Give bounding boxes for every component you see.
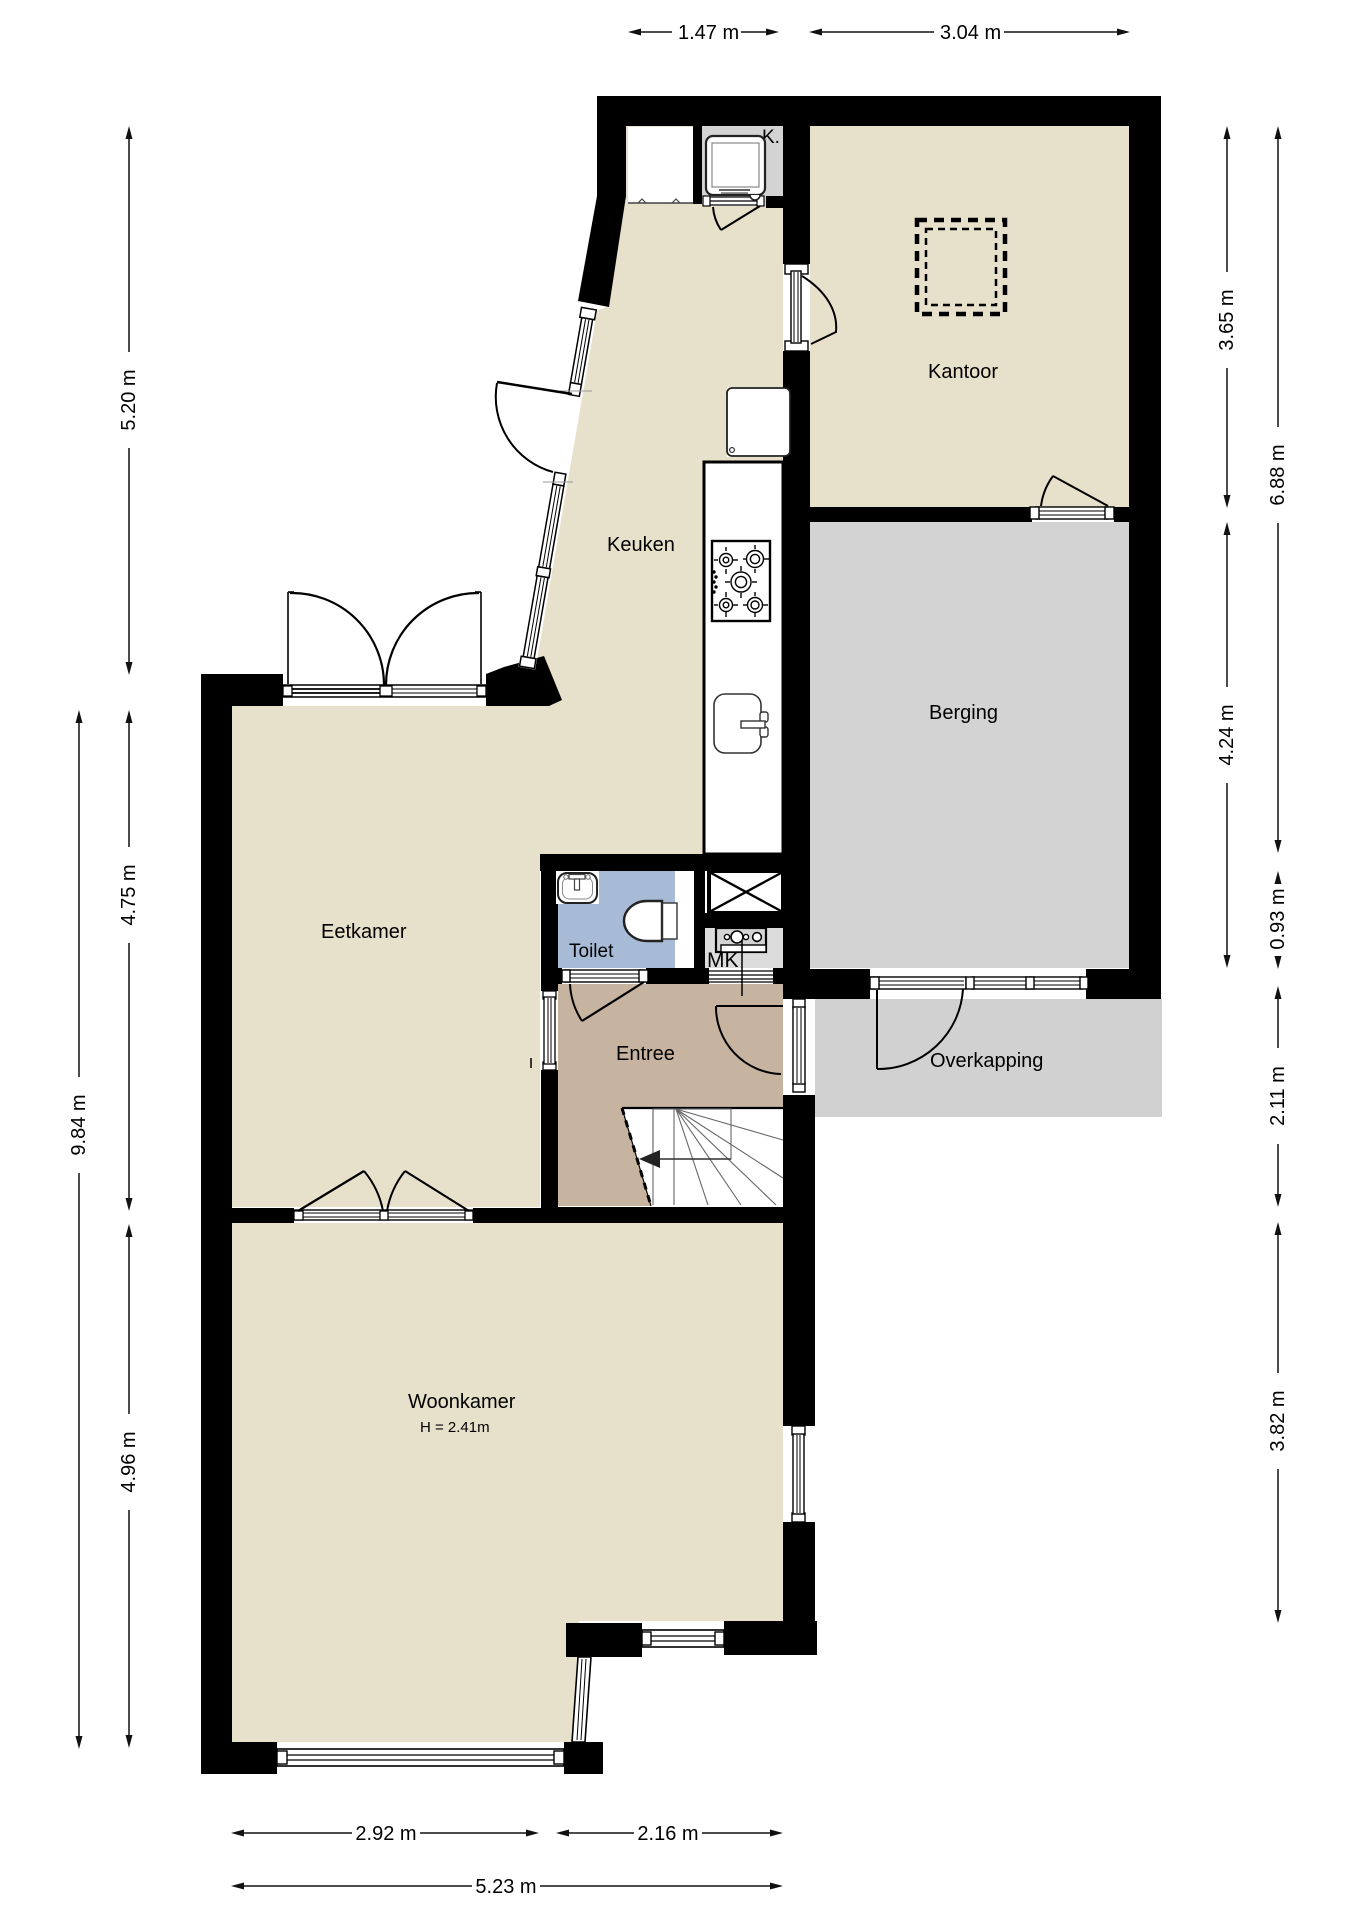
svg-text:5.20 m: 5.20 m <box>118 369 140 430</box>
svg-text:3.82 m: 3.82 m <box>1267 1390 1289 1451</box>
svg-text:Kantoor: Kantoor <box>928 361 998 383</box>
svg-text:5.23 m: 5.23 m <box>475 1876 536 1898</box>
svg-text:2.16 m: 2.16 m <box>637 1823 698 1845</box>
svg-text:MK: MK <box>707 949 739 972</box>
svg-text:1.47 m: 1.47 m <box>678 22 739 44</box>
svg-text:9.84 m: 9.84 m <box>68 1094 90 1155</box>
svg-text:2.11 m: 2.11 m <box>1267 1066 1289 1126</box>
svg-text:Eetkamer: Eetkamer <box>321 921 407 943</box>
svg-text:4.75 m: 4.75 m <box>118 864 140 925</box>
svg-text:3.65 m: 3.65 m <box>1216 289 1238 350</box>
svg-text:Berging: Berging <box>929 702 998 724</box>
svg-text:6.88 m: 6.88 m <box>1267 444 1289 505</box>
svg-text:3.04 m: 3.04 m <box>940 22 1001 44</box>
svg-text:Overkapping: Overkapping <box>930 1050 1043 1072</box>
svg-text:4.96 m: 4.96 m <box>118 1431 140 1492</box>
svg-text:Keuken: Keuken <box>607 534 675 556</box>
svg-text:Toilet: Toilet <box>569 941 614 962</box>
svg-text:Woonkamer: Woonkamer <box>408 1391 516 1413</box>
svg-text:4.24 m: 4.24 m <box>1216 704 1238 765</box>
svg-text:Entree: Entree <box>616 1043 675 1065</box>
svg-text:0.93 m: 0.93 m <box>1267 888 1289 949</box>
svg-text:2.92 m: 2.92 m <box>355 1823 416 1845</box>
svg-text:H = 2.41m: H = 2.41m <box>420 1419 490 1436</box>
